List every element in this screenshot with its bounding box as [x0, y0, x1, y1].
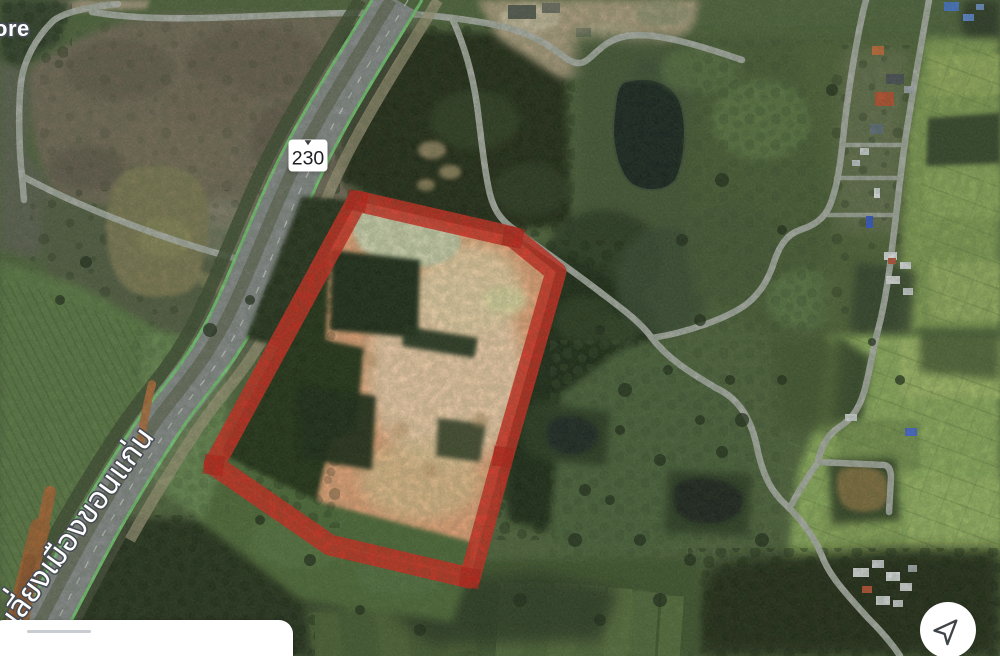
svg-text:230: 230 [292, 148, 325, 170]
svg-text:ore: ore [0, 16, 30, 41]
